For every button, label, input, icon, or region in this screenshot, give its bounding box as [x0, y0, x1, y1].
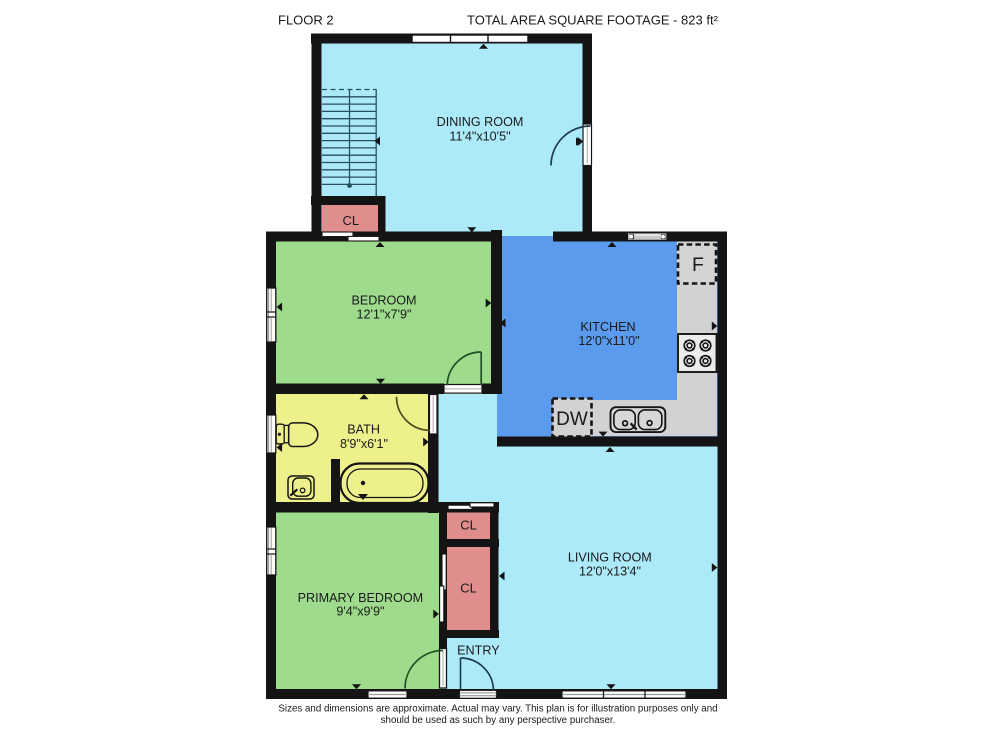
svg-text:12'0"x13'4": 12'0"x13'4": [579, 564, 641, 578]
svg-text:PRIMARY BEDROOM: PRIMARY BEDROOM: [298, 591, 424, 605]
svg-text:FLOOR 2: FLOOR 2: [278, 13, 334, 28]
svg-text:DW: DW: [556, 409, 588, 430]
svg-text:CL: CL: [460, 581, 477, 596]
svg-text:9'4"x9'9": 9'4"x9'9": [336, 605, 384, 619]
svg-text:KITCHEN: KITCHEN: [580, 320, 635, 334]
svg-text:8'9"x6'1": 8'9"x6'1": [340, 437, 388, 451]
svg-text:CL: CL: [342, 213, 359, 228]
svg-text:12'0"x11'0": 12'0"x11'0": [578, 334, 639, 348]
svg-text:BEDROOM: BEDROOM: [351, 293, 416, 307]
svg-text:ENTRY: ENTRY: [457, 643, 500, 657]
svg-text:DINING ROOM: DINING ROOM: [437, 115, 524, 129]
svg-text:F: F: [692, 254, 704, 276]
svg-text:12'1"x7'9": 12'1"x7'9": [356, 307, 411, 321]
svg-text:should be used as such by any: should be used as such by any perspectiv…: [381, 715, 616, 726]
svg-text:LIVING ROOM: LIVING ROOM: [568, 550, 652, 564]
svg-text:Sizes and dimensions are appro: Sizes and dimensions are approximate. Ac…: [278, 703, 717, 714]
svg-text:TOTAL AREA SQUARE FOOTAGE - 82: TOTAL AREA SQUARE FOOTAGE - 823 ft²: [467, 13, 719, 28]
svg-text:CL: CL: [460, 518, 477, 533]
svg-text:11'4"x10'5": 11'4"x10'5": [449, 130, 510, 144]
svg-text:BATH: BATH: [347, 423, 380, 437]
